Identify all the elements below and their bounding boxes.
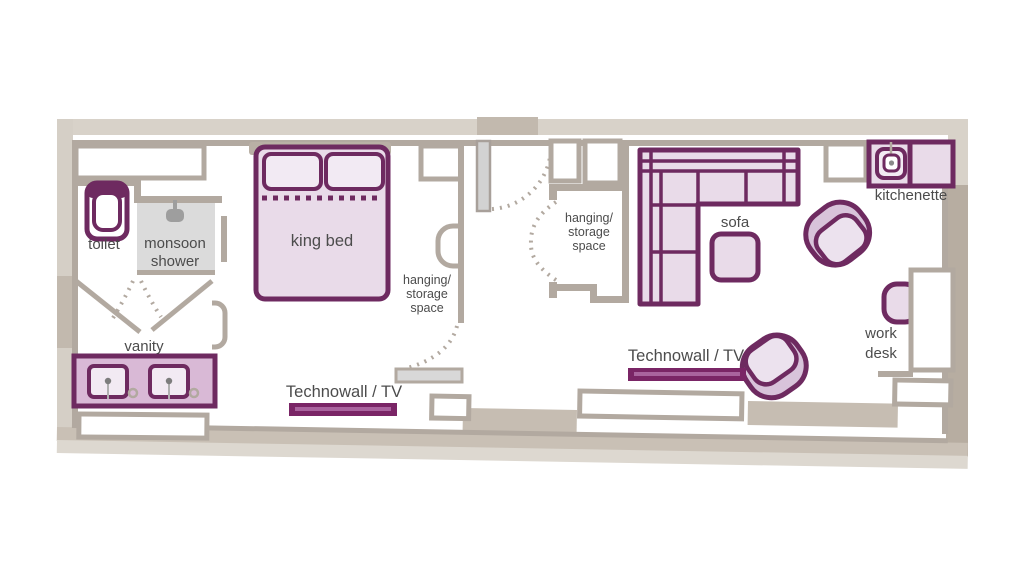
vanity-label: vanity [124, 338, 164, 355]
king-bed [256, 147, 388, 299]
niche-right-of-bed [421, 146, 461, 179]
hanging-storage-living-3: space [572, 239, 605, 253]
bottom-wall-step-a [463, 408, 577, 434]
window-vanity [79, 414, 207, 438]
sofa-label: sofa [721, 214, 750, 231]
bottom-wall-step-b [748, 401, 898, 428]
floor-plan-page: toilet monsoon shower vanity king bed ha… [0, 0, 1024, 576]
monsoon-shower-label-2: shower [151, 253, 199, 270]
technowall-living-bar [628, 368, 746, 381]
sliding-door [396, 369, 462, 382]
bathroom-bedroom-wall [221, 216, 227, 262]
entrance [477, 141, 620, 211]
bathroom: toilet monsoon shower vanity [72, 146, 227, 438]
king-bed-label: king bed [291, 232, 353, 250]
hanging-storage-bedroom-1: hanging/ [403, 273, 451, 287]
bathroom-top-niche [76, 146, 204, 178]
window-bedroom [432, 396, 469, 419]
bedroom: king bed hanging/ storage space Technowa… [249, 140, 469, 419]
window-desk [895, 380, 951, 405]
entrance-threshold [477, 117, 538, 135]
pillow-left [264, 154, 321, 189]
monsoon-shower-label-1: monsoon [144, 235, 206, 252]
bathroom-doors [76, 281, 212, 332]
floor-plan-svg: toilet monsoon shower vanity king bed ha… [0, 0, 1024, 576]
pillow-right [326, 154, 383, 189]
kitchenette-label: kitchenette [875, 187, 948, 204]
hanging-storage-bedroom-2: storage [406, 287, 448, 301]
sliding-door-arc [404, 326, 457, 369]
closet-door-arc-bottom [531, 243, 556, 280]
hanging-storage-bedroom-3: space [410, 301, 443, 315]
tub-chair-top [796, 192, 880, 275]
hanging-storage-living-2: storage [568, 225, 610, 239]
toilet-label: toilet [88, 236, 121, 253]
entry-niche-2 [585, 141, 620, 183]
niche-left-of-kitchenette [826, 144, 866, 180]
hanging-storage-living-1: hanging/ [565, 211, 613, 225]
window-living [580, 391, 742, 419]
entry-niche-1 [551, 141, 579, 181]
bathroom-door-pull [212, 303, 225, 347]
left-wall-dark-segment [57, 276, 73, 348]
vanity-counter [74, 356, 215, 406]
technowall-bedroom-label: Technowall / TV [286, 383, 402, 401]
ottoman [712, 234, 758, 280]
entrance-door-arc [492, 146, 551, 209]
work-desk-label-1: work [864, 325, 897, 342]
toilet-icon [87, 183, 127, 239]
living-room: sofa Technowall / TV kitchenette [580, 142, 953, 419]
work-desk-label-2: desk [865, 345, 897, 362]
technowall-bedroom-bar [289, 403, 397, 416]
technowall-living-label: Technowall / TV [628, 347, 744, 365]
work-desk [911, 270, 953, 370]
kitchenette-counter [869, 142, 953, 186]
bedroom-living-wall [458, 140, 464, 323]
closet-door-arc-top [531, 202, 556, 243]
entrance-door-leaf [477, 141, 490, 211]
closet-rail-bracket [438, 226, 458, 266]
tub-chair-bottom [733, 325, 816, 407]
